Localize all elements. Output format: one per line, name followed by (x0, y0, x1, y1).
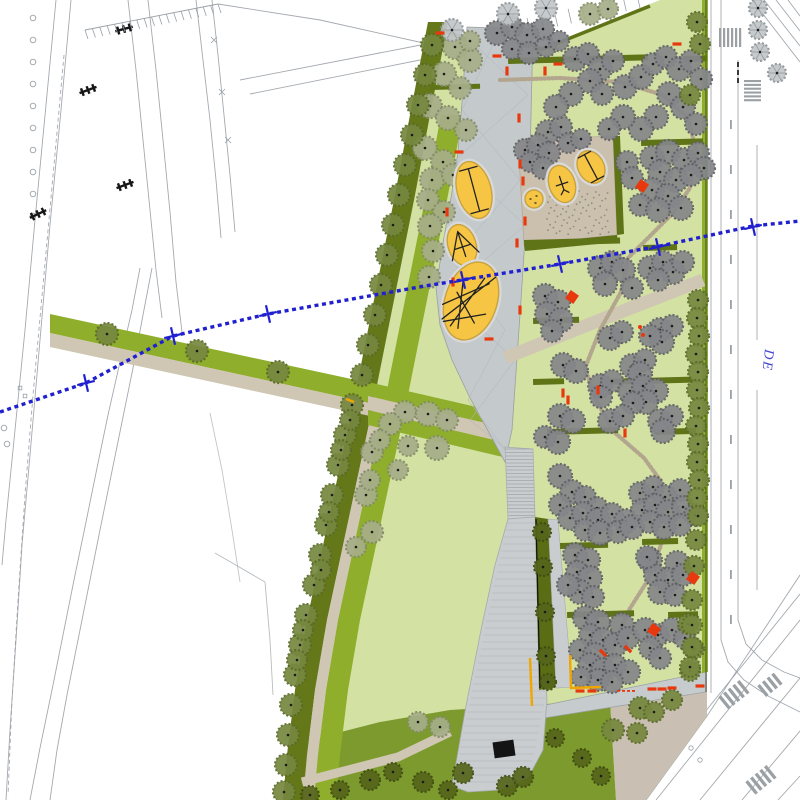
olive-tree (688, 362, 708, 382)
olive-tree (421, 34, 443, 56)
olive-tree (689, 398, 709, 418)
olive-tree (682, 637, 702, 657)
utility-cross-marker (257, 303, 279, 325)
bench (596, 386, 599, 395)
bench (518, 160, 521, 169)
sage-tree (346, 537, 366, 557)
sage-tree (430, 717, 450, 737)
olive-tree (357, 334, 379, 356)
street-tree (768, 64, 786, 82)
sage-tree (449, 77, 471, 99)
olive-tree (689, 470, 709, 490)
bench (566, 396, 569, 405)
sage-tree (398, 436, 418, 456)
gray-tree (611, 321, 633, 343)
dark-tree (331, 781, 349, 799)
bench (493, 54, 502, 57)
gray-tree (601, 671, 623, 693)
olive-tree (280, 694, 302, 716)
playground (525, 190, 543, 208)
gray-tree (685, 113, 707, 135)
dark-tree (360, 770, 380, 790)
olive-tree (680, 657, 700, 677)
dark-tree (534, 558, 552, 576)
gray-tree (557, 574, 579, 596)
dark-tree (533, 523, 551, 541)
gray-tree (571, 667, 591, 687)
hedge-row (642, 538, 678, 545)
bench (588, 689, 597, 692)
bench (668, 686, 677, 689)
sage-tree (436, 409, 458, 431)
sage-tree (460, 31, 480, 51)
sage-tree (455, 119, 477, 141)
street-name-label: DE (758, 348, 776, 372)
sage-tree (418, 214, 442, 238)
olive-tree (662, 690, 682, 710)
gray-tree (593, 272, 617, 296)
bench (648, 687, 657, 690)
bench (673, 42, 682, 45)
gray-tree (649, 647, 671, 669)
dark-tree (536, 603, 554, 621)
olive-tree (644, 702, 664, 722)
gray-tree (591, 83, 613, 105)
gray-tree (541, 320, 563, 342)
olive-tree (407, 94, 429, 116)
olive-tree (627, 723, 647, 743)
bench (515, 239, 518, 248)
olive-tree (689, 326, 709, 346)
gray-tree (564, 359, 588, 383)
olive-tree (688, 506, 708, 526)
bench (517, 114, 520, 123)
olive-tree (602, 719, 624, 741)
gray-tree (669, 196, 693, 220)
olive-tree (340, 410, 360, 430)
olive-tree (293, 620, 313, 640)
olive-tree (311, 560, 331, 580)
survey-symbol (78, 83, 98, 97)
bench (521, 177, 524, 186)
olive-tree (687, 452, 707, 472)
olive-tree (687, 380, 707, 400)
gray-tree (544, 95, 568, 119)
dark-tree (453, 763, 473, 783)
olive-tree (277, 724, 299, 746)
gray-tree (680, 164, 702, 186)
survey-symbol (115, 178, 135, 192)
site-plan: DE (0, 0, 800, 800)
olive-tree (686, 530, 706, 550)
site-plan-canvas (0, 0, 800, 800)
hedge-row (533, 378, 564, 385)
olive-tree (688, 434, 708, 454)
olive-tree (682, 615, 702, 635)
bench (505, 67, 508, 76)
utility-cross-marker (75, 372, 97, 394)
olive-tree (96, 323, 118, 345)
olive-tree (686, 416, 706, 436)
sage-tree (598, 0, 618, 19)
olive-tree (267, 361, 289, 383)
olive-tree (680, 85, 700, 105)
olive-tree (370, 274, 392, 296)
bench (576, 689, 585, 692)
bench (518, 306, 521, 315)
gray-tree (621, 277, 643, 299)
gray-tree (612, 405, 634, 427)
olive-tree (690, 34, 710, 54)
sage-tree (420, 168, 444, 192)
olive-tree (682, 590, 702, 610)
olive-tree (388, 184, 410, 206)
gray-tree (590, 386, 612, 408)
sage-tree (425, 436, 449, 460)
gray-tree (546, 430, 570, 454)
gray-tree (602, 50, 624, 72)
dark-tree (573, 749, 591, 767)
olive-tree (687, 308, 707, 328)
bench (543, 67, 546, 76)
sage-tree (408, 712, 428, 732)
bench (658, 687, 667, 690)
sage-tree (360, 470, 380, 490)
olive-tree (287, 650, 307, 670)
gray-tree (598, 118, 620, 140)
street-tree (749, 0, 767, 17)
gray-tree (636, 546, 658, 568)
olive-tree (364, 304, 386, 326)
olive-tree (688, 290, 708, 310)
bench (445, 208, 448, 217)
street-tree (497, 3, 519, 25)
olive-tree (351, 364, 373, 386)
dark-tree (413, 772, 433, 792)
olive-tree (382, 214, 404, 236)
bench (455, 150, 464, 153)
olive-tree (319, 502, 339, 522)
street-tree (749, 21, 767, 39)
dark-tree (384, 763, 402, 781)
street-tree (441, 19, 463, 41)
bench (523, 217, 526, 226)
dark-tree (513, 767, 533, 787)
dark-tree (537, 647, 555, 665)
gray-tree (582, 586, 604, 608)
gray-tree (647, 269, 669, 291)
street-tree (535, 0, 557, 19)
dark-tree (592, 767, 610, 785)
sage-tree (388, 460, 408, 480)
gray-tree (561, 409, 585, 433)
kiosk (492, 740, 515, 759)
dark-tree (546, 729, 564, 747)
bench (436, 31, 445, 34)
olive-tree (686, 344, 706, 364)
crosswalk (718, 680, 749, 710)
dark-tree (439, 781, 457, 799)
olive-tree (687, 12, 707, 32)
gray-tree (549, 31, 569, 51)
utility-cross-marker (742, 216, 764, 238)
olive-tree (186, 340, 208, 362)
bench (485, 337, 494, 340)
dark-tree (540, 674, 556, 690)
bench (696, 684, 705, 687)
olive-tree (331, 440, 351, 460)
sage-tree (422, 240, 444, 262)
olive-tree (275, 754, 297, 776)
sage-tree (370, 430, 390, 450)
bench (561, 389, 564, 398)
olive-tree (414, 64, 436, 86)
olive-tree (401, 124, 423, 146)
street-tree (751, 43, 769, 61)
survey-symbol (28, 207, 48, 222)
gray-tree (571, 129, 591, 149)
gray-tree (672, 251, 694, 273)
olive-tree (376, 244, 398, 266)
bench (554, 62, 563, 65)
crosswalk (757, 673, 782, 697)
bench (623, 429, 626, 438)
sage-tree (361, 521, 383, 543)
sage-tree (458, 48, 482, 72)
gray-tree (651, 419, 675, 443)
olive-tree (394, 154, 416, 176)
gray-tree (646, 198, 670, 222)
